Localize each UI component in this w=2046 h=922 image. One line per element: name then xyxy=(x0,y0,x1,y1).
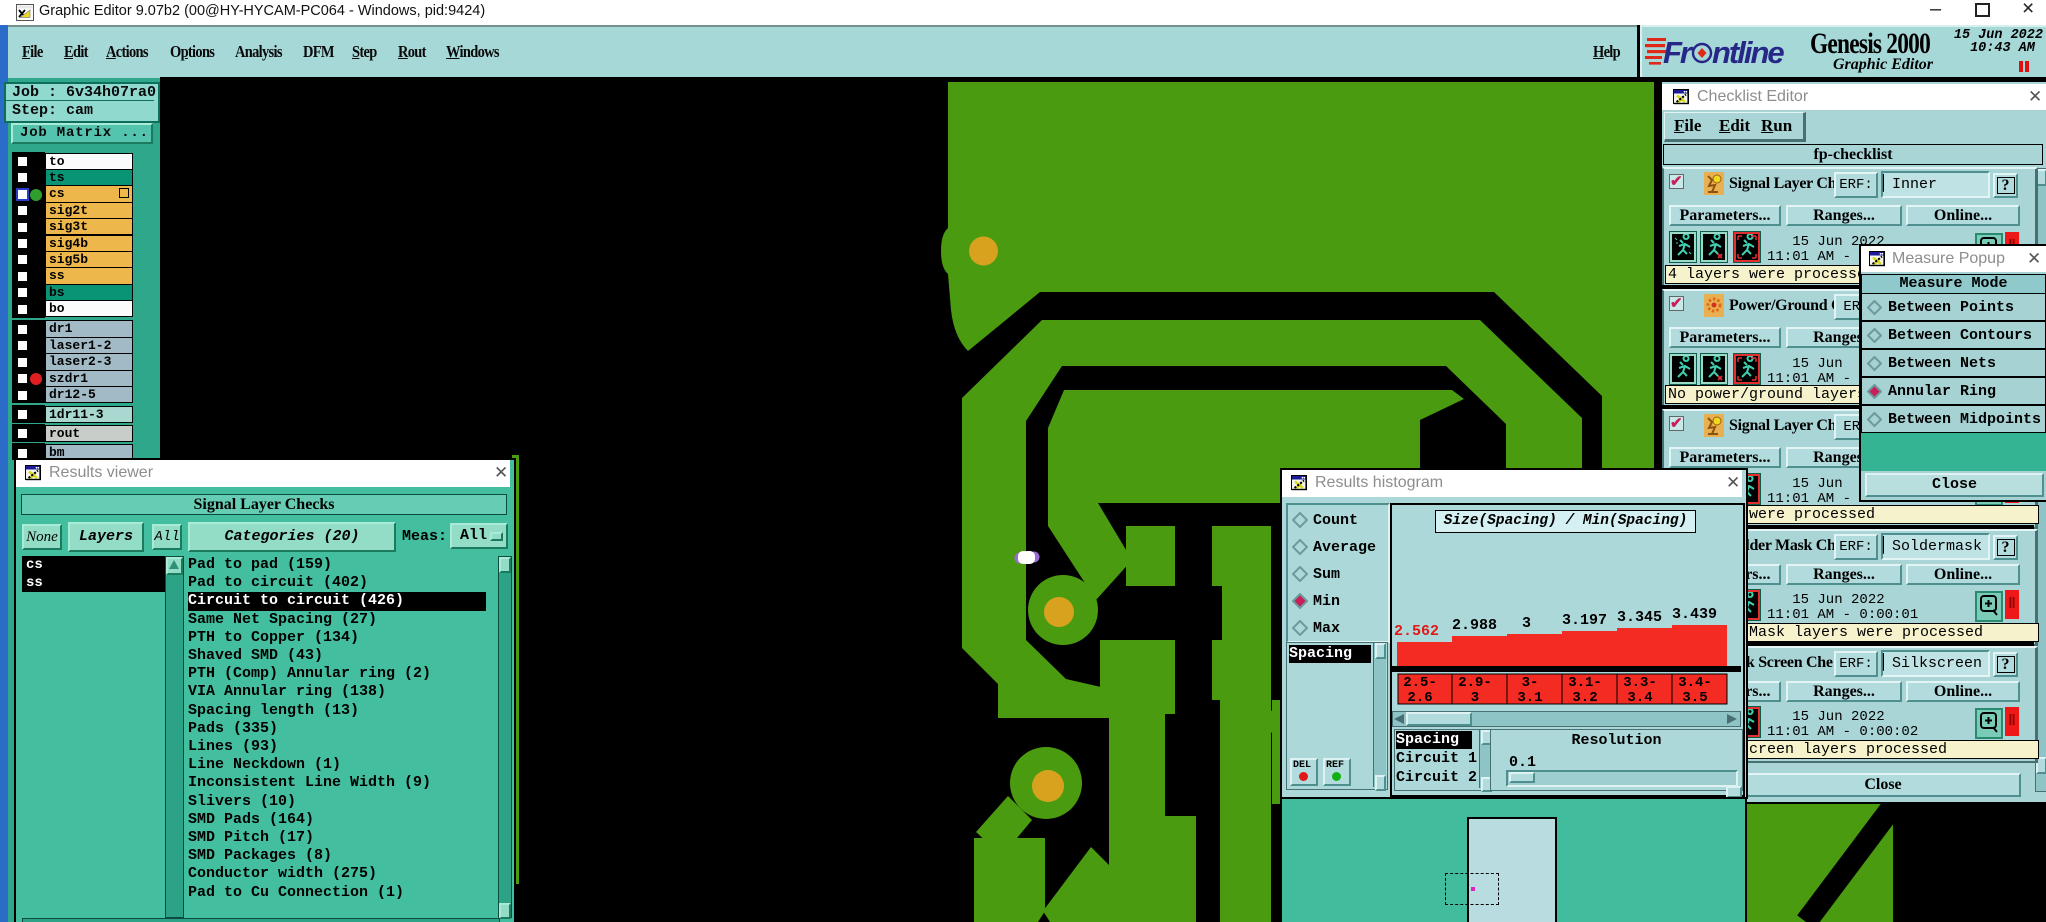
svg-text:ntline: ntline xyxy=(1712,35,1784,70)
svg-text:Fr: Fr xyxy=(1663,35,1694,70)
